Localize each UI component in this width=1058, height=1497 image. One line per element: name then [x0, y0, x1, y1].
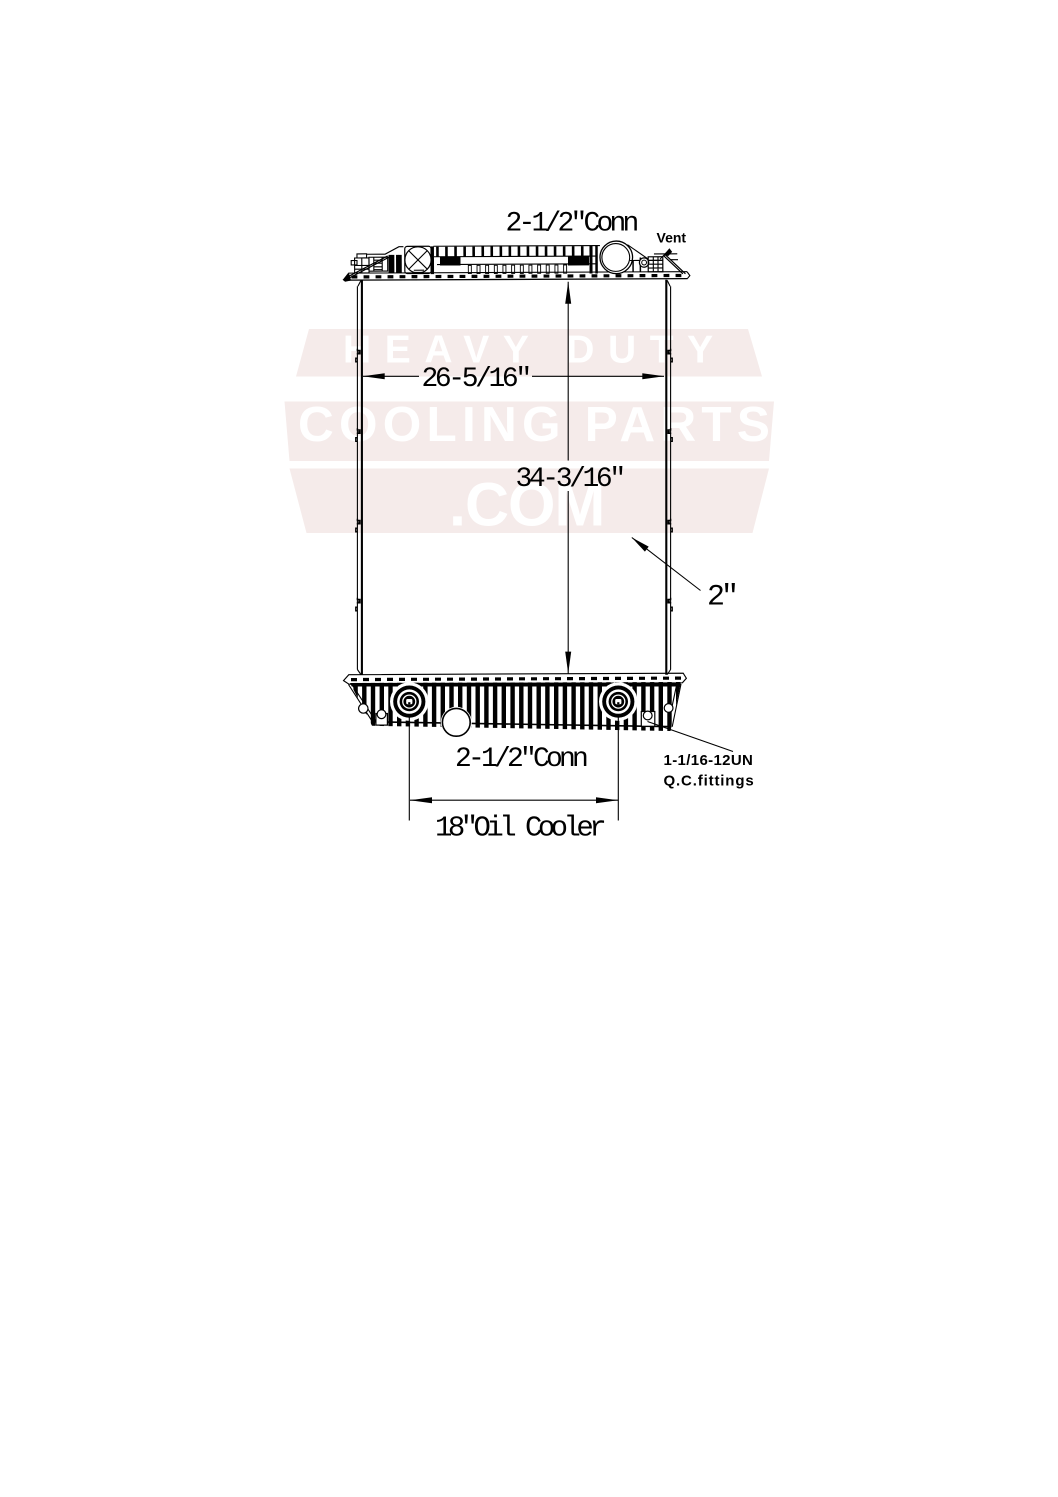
- svg-text:2″: 2″: [707, 581, 735, 615]
- svg-text:26-5/16″: 26-5/16″: [422, 364, 529, 395]
- svg-text:Q.C.fittings: Q.C.fittings: [664, 773, 755, 790]
- svg-text:2-1/2″Conn: 2-1/2″Conn: [455, 744, 587, 775]
- svg-text:Vent: Vent: [657, 230, 687, 246]
- svg-text:1-1/16-12UN: 1-1/16-12UN: [664, 752, 754, 769]
- svg-text:COOLING PARTS: COOLING PARTS: [298, 397, 775, 452]
- svg-text:18″Oil Cooler: 18″Oil Cooler: [435, 812, 604, 845]
- svg-text:2-1/2″Conn: 2-1/2″Conn: [506, 209, 638, 240]
- svg-text:34-3/16″: 34-3/16″: [516, 464, 623, 495]
